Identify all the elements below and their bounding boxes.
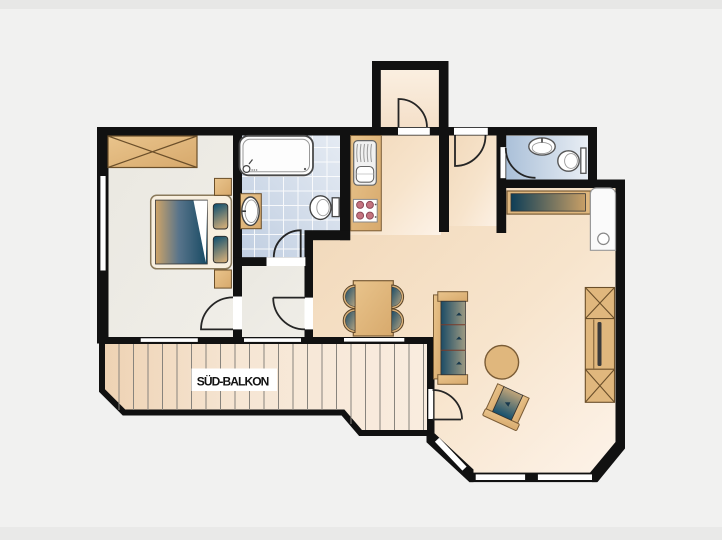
svg-text:SÜD-BALKON: SÜD-BALKON [197, 374, 269, 389]
